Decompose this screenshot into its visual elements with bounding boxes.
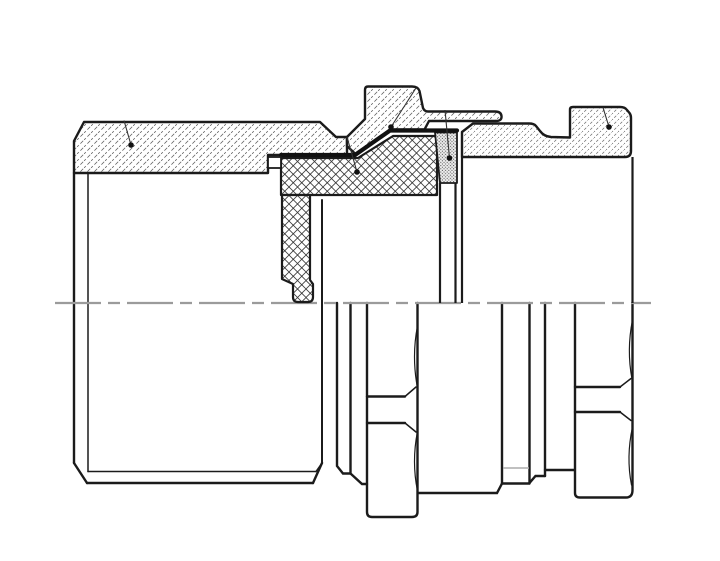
seal-washer-section — [435, 133, 457, 184]
hex-flat-flare-upper — [405, 387, 416, 397]
tube-walls — [440, 157, 633, 303]
lower-half-outlines — [74, 173, 633, 517]
hex-flat-flare-lower — [405, 423, 416, 432]
nut-flat-flare-lower — [620, 412, 631, 421]
shell-left-chamfer — [74, 463, 87, 483]
sleeve-bottom — [418, 484, 502, 494]
technical-drawing: Sectioned assembly drawing of a tube cou… — [0, 0, 720, 561]
leader-dot-seal — [354, 169, 360, 175]
drawing-canvas: Sectioned assembly drawing of a tube cou… — [0, 0, 720, 561]
sleeve-step-bottom — [502, 476, 545, 484]
nut-lower-profile — [575, 303, 633, 498]
leader-dot-nut — [606, 124, 612, 130]
nut-flat-flare-upper — [620, 379, 631, 388]
leader-dot-shell — [128, 142, 134, 148]
seal-grommet-lip — [282, 195, 313, 302]
ring-line-2 — [351, 303, 368, 484]
leader-dot-washer — [447, 155, 453, 161]
ring-line-1 — [337, 303, 351, 474]
hex-left-edge — [367, 303, 418, 517]
leader-dot-clamp — [388, 124, 394, 130]
retainer-notch — [268, 157, 281, 168]
